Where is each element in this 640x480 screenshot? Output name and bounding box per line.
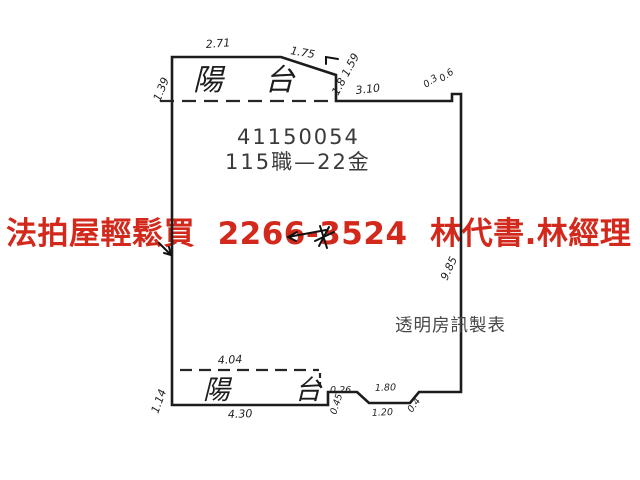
survey-arrow-marks <box>288 226 334 248</box>
balcony-bottom-label: 陽 台 <box>203 375 350 406</box>
dim-left-top: 1.39 <box>151 76 172 104</box>
dim-top-width: 2.71 <box>205 36 230 51</box>
dim-top-right-width: 3.10 <box>355 81 381 96</box>
floorplan-page: 法拍屋輕鬆買 2266-3524 林代書.林經理 陽 台 陽 台 4115005… <box>0 0 640 480</box>
dim-notch-bottom: 1.20 <box>372 407 394 419</box>
maker-credit-text: 透明房訊製表 <box>395 316 506 336</box>
floorplan-drawing: 陽 台 陽 台 41150054 115職—22金 透明房訊製表 2.71 1.… <box>0 0 640 480</box>
dim-left-bottom: 1.14 <box>149 388 170 415</box>
dim-balcony-inner-w: 4.04 <box>217 353 242 367</box>
dim-corner-step-b: 0.6 <box>437 67 456 85</box>
dim-notch-side: 0.4 <box>405 396 423 415</box>
case-number-text: 41150054 <box>237 125 360 149</box>
balcony-top-label: 陽 台 <box>193 63 311 98</box>
dim-notch-top: 1.80 <box>375 382 397 394</box>
dim-top-slope: 1.75 <box>289 44 315 61</box>
dim-right-height: 9.85 <box>438 255 460 283</box>
dim-balcony-width: 4.30 <box>228 407 253 421</box>
case-label-text: 115職—22金 <box>225 150 371 174</box>
corner-bracket-mark <box>326 57 338 64</box>
wall-tick-mark <box>159 243 171 255</box>
